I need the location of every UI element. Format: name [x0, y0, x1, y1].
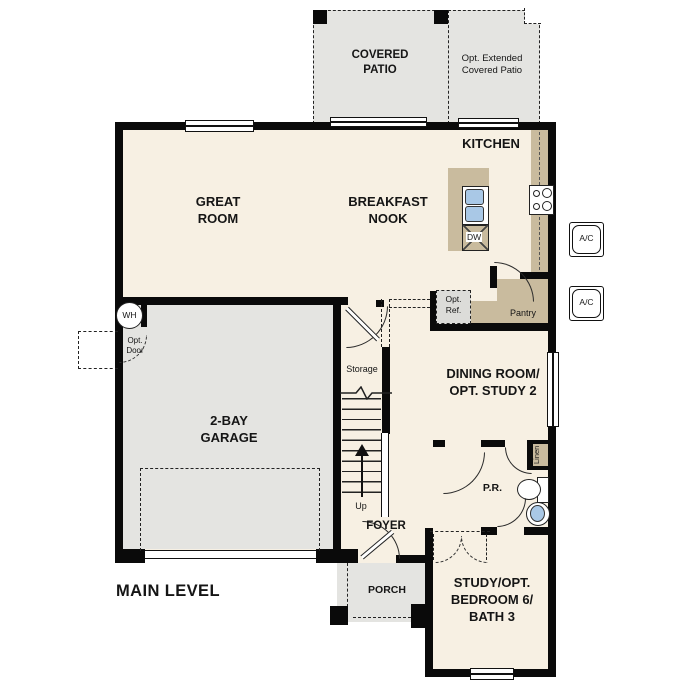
garage-door-dashed-zone	[140, 468, 320, 551]
covered-patio-label: COVERED PATIO	[330, 48, 430, 78]
patio-sliding-door	[330, 117, 427, 127]
wall	[115, 297, 348, 305]
up-arrow-shaft	[361, 455, 363, 497]
vanity-sink-icon	[526, 502, 550, 526]
dishwasher-label: DW	[466, 232, 482, 242]
porch-post	[411, 604, 433, 628]
wall	[316, 549, 358, 563]
window	[458, 118, 519, 128]
wall	[481, 440, 505, 447]
ac-unit: A/C	[569, 222, 604, 257]
sink-basin	[465, 206, 484, 222]
burner-icon	[542, 188, 552, 198]
ac-label: A/C	[570, 297, 603, 307]
linen-label: Linen	[532, 441, 549, 468]
garage-door-opening	[145, 550, 316, 559]
water-heater-label: WH	[117, 310, 142, 321]
patio-post-right	[434, 10, 448, 24]
wall	[430, 323, 556, 331]
kitchen-label: KITCHEN	[449, 136, 533, 153]
cased-opening	[389, 299, 430, 308]
burner-icon	[542, 201, 552, 211]
stair-rail	[381, 433, 389, 517]
wall	[425, 528, 433, 677]
up-label: Up	[351, 501, 371, 512]
toilet-icon	[517, 479, 541, 500]
main-level-title: MAIN LEVEL	[116, 581, 266, 602]
opt-ref-label: Opt. Ref.	[437, 294, 470, 316]
garage-label: 2-BAY GARAGE	[179, 412, 279, 446]
stair-break-line	[340, 386, 392, 400]
burner-icon	[533, 190, 540, 197]
burner-icon	[533, 203, 540, 210]
wall	[333, 297, 341, 563]
great-room-label: GREAT ROOM	[168, 193, 268, 227]
sink-basin	[465, 189, 484, 205]
floor-plan: COVERED PATIO Opt. Extended Covered Pati…	[0, 0, 687, 687]
dining-room-label: DINING ROOM/ OPT. STUDY 2	[433, 365, 553, 399]
counter	[470, 301, 504, 323]
window	[185, 120, 254, 132]
opt-ref-box: Opt. Ref.	[436, 290, 471, 324]
window	[470, 668, 514, 680]
opt-extended-patio-label: Opt. Extended Covered Patio	[448, 53, 536, 77]
foyer-label: FOYER	[356, 519, 416, 534]
up-arrow-head	[355, 444, 369, 456]
porch-post	[330, 606, 348, 625]
patio-notch	[524, 8, 541, 24]
wall	[524, 527, 556, 535]
wall	[433, 440, 445, 447]
porch-label: PORCH	[357, 584, 417, 598]
dishwasher-icon: DW	[462, 224, 489, 251]
porch-dash	[347, 563, 348, 607]
ac-unit: A/C	[569, 286, 604, 321]
opt-closet-dash	[433, 534, 434, 560]
patio-post-left	[313, 10, 327, 24]
opt-door-landing	[78, 331, 118, 369]
cased-opening	[381, 299, 390, 347]
sink-bowl	[530, 505, 545, 522]
range-icon	[529, 185, 554, 215]
powder-room-label: P.R.	[472, 482, 502, 496]
water-heater-icon: WH	[116, 302, 143, 329]
pantry-label: Pantry	[500, 308, 546, 319]
breakfast-nook-label: BREAKFAST NOOK	[335, 193, 441, 227]
sink-icon	[462, 186, 489, 226]
storage-label: Storage	[340, 364, 384, 375]
opt-closet-dash	[430, 531, 490, 532]
opt-door-label: Opt. Door	[118, 336, 152, 356]
wall	[115, 549, 145, 563]
porch-dash	[353, 617, 411, 618]
ac-label: A/C	[570, 233, 603, 243]
study-label: STUDY/OPT. BEDROOM 6/ BATH 3	[437, 574, 547, 625]
